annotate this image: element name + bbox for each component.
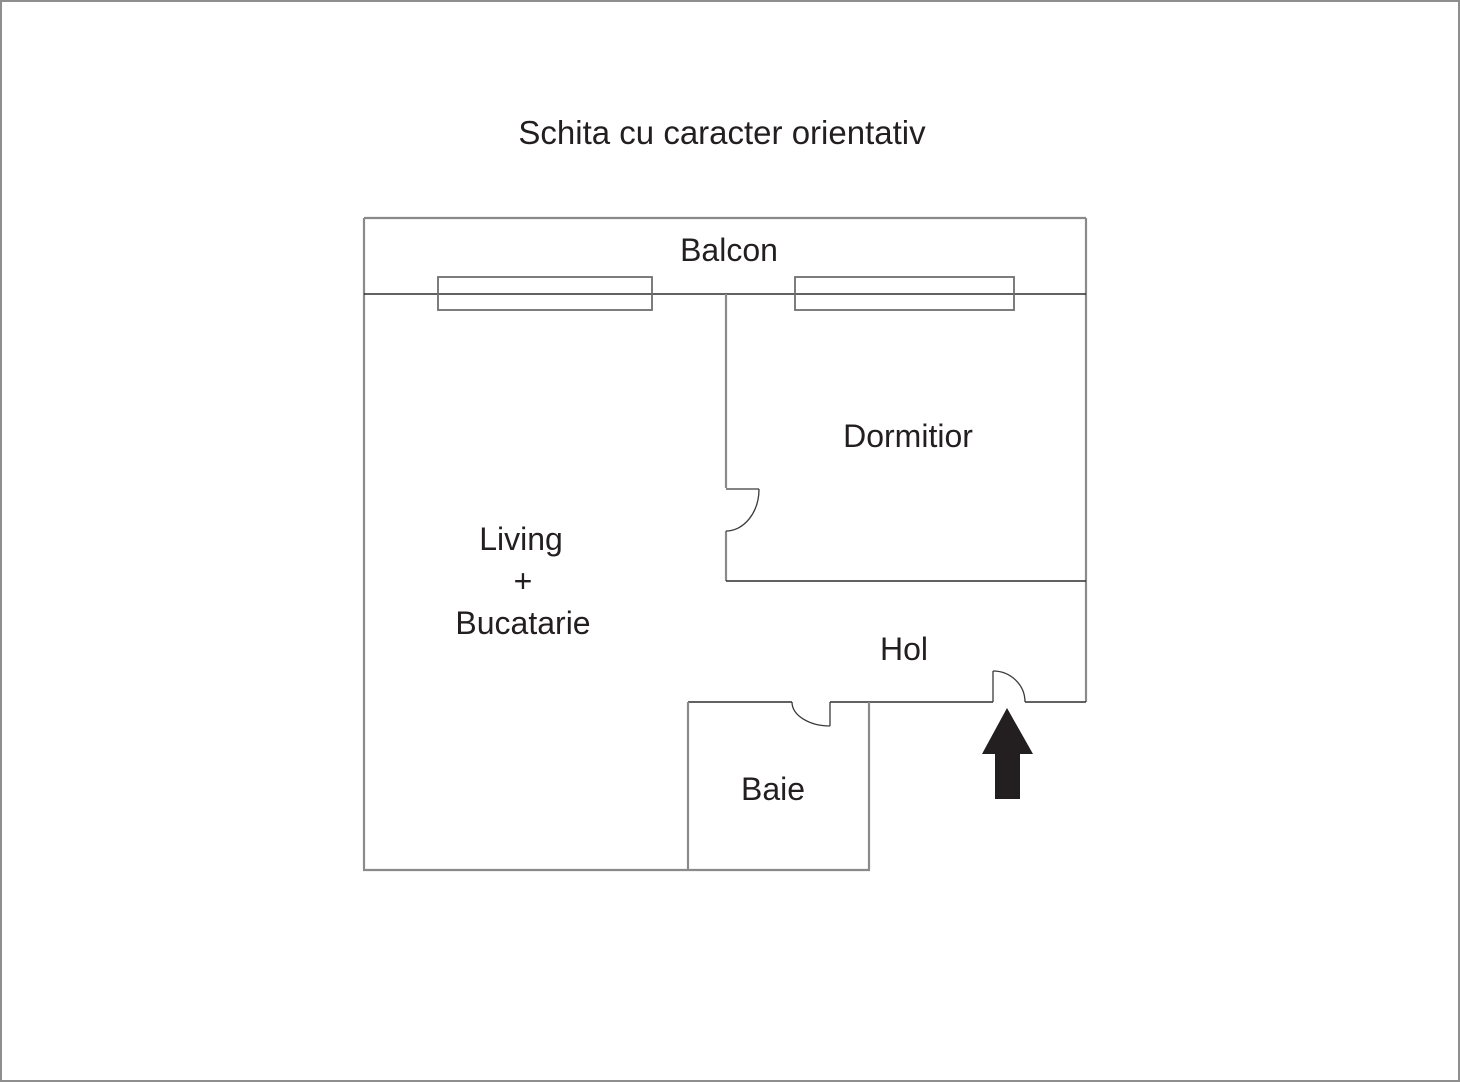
balcony-label: Balcon: [680, 232, 778, 268]
floor-plan-canvas: Schita cu caracter orientativ: [2, 2, 1458, 1080]
diagram-title: Schita cu caracter orientativ: [518, 114, 926, 151]
living-label-line3: Bucatarie: [455, 605, 590, 641]
floor-plan-page: Schita cu caracter orientativ: [0, 0, 1460, 1082]
entrance-arrow-icon: [982, 708, 1033, 799]
bedroom-label: Dormitior: [843, 418, 973, 454]
hall-label: Hol: [880, 631, 928, 667]
living-label-line1: Living: [479, 521, 563, 557]
entrance-door-swing-arc: [993, 671, 1025, 702]
bath-label: Baie: [741, 771, 805, 807]
bedroom-door-swing-arc: [726, 489, 759, 531]
bath-door-swing-arc: [792, 702, 830, 726]
living-label-line2: +: [514, 563, 533, 599]
